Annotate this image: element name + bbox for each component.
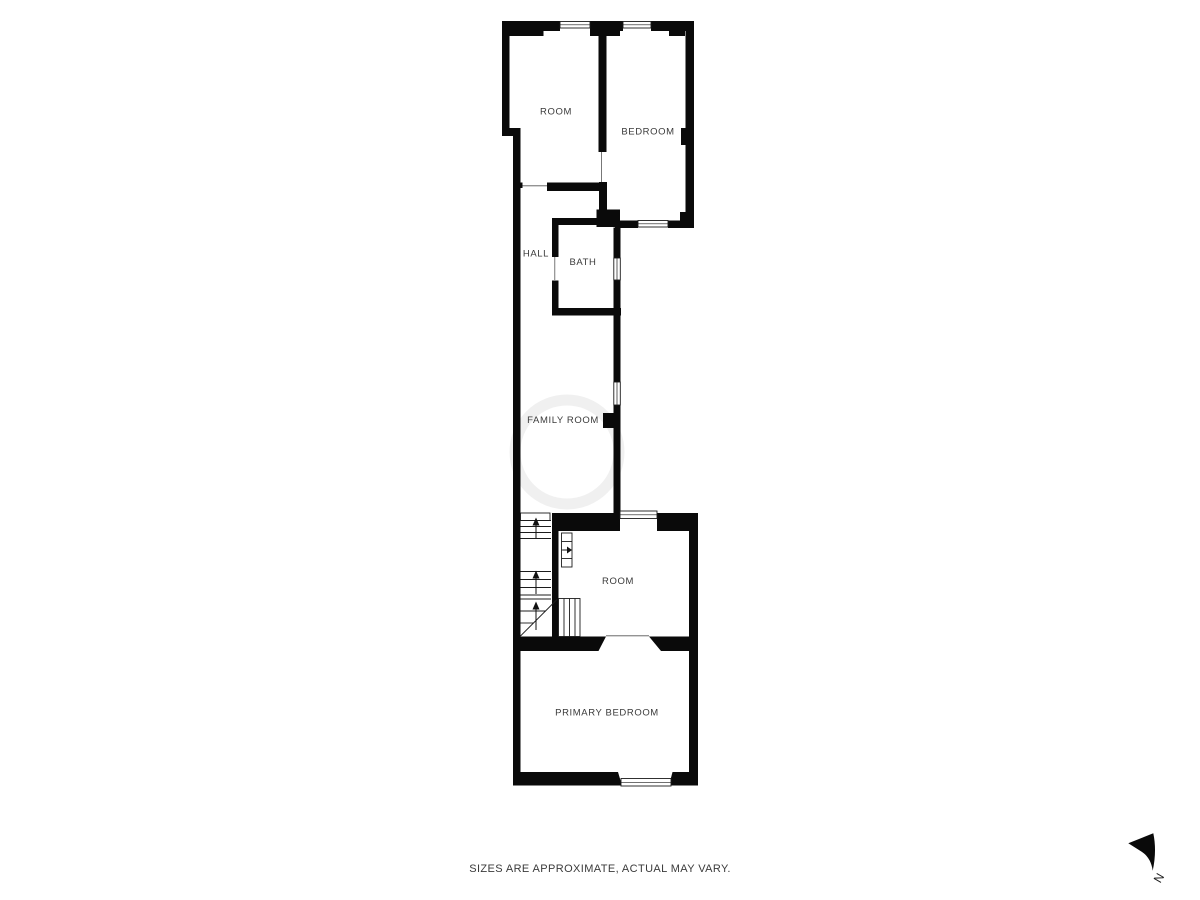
wall-segment (552, 513, 620, 531)
wall-segment (614, 316, 621, 383)
wall-segment (649, 637, 690, 652)
room-label-family-room: FAMILY ROOM (527, 415, 599, 426)
stair-flight-upper (521, 518, 552, 539)
disclaimer-text: SIZES ARE APPROXIMATE, ACTUAL MAY VARY. (469, 863, 731, 875)
wall-segment (552, 308, 621, 316)
staircase (521, 518, 581, 637)
room-label-hall: HALL (523, 249, 549, 260)
wall-segment (599, 31, 607, 152)
north-arrow-icon (1128, 833, 1155, 870)
window-bedroom-bottom (638, 221, 668, 228)
window-room-top (560, 22, 590, 29)
wall-segment (519, 183, 523, 189)
stair-landing-treads (559, 599, 581, 637)
window-bath-right (614, 258, 621, 280)
wall-segment (502, 21, 560, 31)
wall-segment (552, 218, 600, 225)
room-label-primary-bedroom: PRIMARY BEDROOM (555, 708, 659, 719)
room-label-bath: BATH (569, 257, 596, 268)
room-label-bedroom: BEDROOM (621, 127, 674, 138)
wall-segment (552, 218, 559, 257)
wall-segment (614, 428, 621, 514)
window-room-lower-top (620, 511, 657, 519)
wall-segment (513, 637, 606, 652)
wall-segment (513, 772, 618, 786)
wall-segment (603, 413, 621, 428)
wall-segment (590, 31, 599, 36)
wall-segment (669, 31, 685, 36)
room-label-room-top: ROOM (540, 107, 572, 118)
wall-segment (614, 280, 621, 309)
wall-segment (510, 31, 544, 36)
compass-north-label: N (1151, 871, 1167, 886)
wall-segment (513, 128, 521, 785)
window-bedroom-top (623, 22, 651, 29)
wall-segment (590, 21, 623, 31)
wall-segment (607, 31, 621, 36)
wall-segment (615, 221, 638, 229)
stair-flight-lower (521, 599, 558, 636)
compass: N (1128, 833, 1167, 885)
wall-segment (552, 281, 559, 309)
wall-segment (552, 530, 559, 638)
wall-segment (689, 513, 698, 785)
window-family-room-right (614, 382, 621, 405)
floor-plan-page: ROOM BEDROOM HALL BATH FAMILY ROOM ROOM … (0, 0, 1200, 900)
wall-segment (686, 21, 695, 228)
stair-flight-middle (521, 571, 552, 596)
wall-segment (547, 183, 607, 192)
wall-segment (614, 405, 621, 414)
wall-segment (673, 772, 699, 786)
wall-segment (614, 228, 621, 259)
floor-plan-drawing: ROOM BEDROOM HALL BATH FAMILY ROOM ROOM … (0, 0, 1200, 900)
wall-segment (502, 21, 510, 131)
window-primary-bedroom-bottom (621, 779, 671, 787)
stair-winder-line (521, 600, 558, 637)
stair-entry-treads (562, 533, 573, 567)
room-label-room-lower: ROOM (602, 576, 634, 587)
wall-segment (681, 128, 694, 145)
